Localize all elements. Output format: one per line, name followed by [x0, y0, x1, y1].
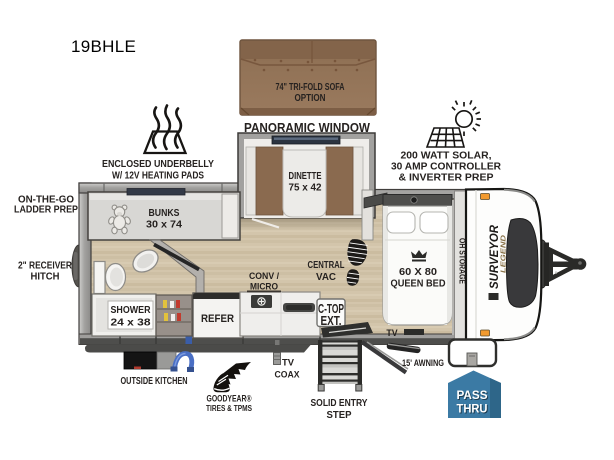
svg-text:BUNKS: BUNKS: [149, 208, 180, 219]
svg-text:OPTION: OPTION: [295, 92, 326, 104]
svg-text:LEGEND: LEGEND: [499, 234, 508, 273]
svg-text:TIRES & TPMS: TIRES & TPMS: [206, 403, 252, 413]
svg-text:SHOWER: SHOWER: [111, 305, 152, 316]
svg-text:QUEEN BED: QUEEN BED: [391, 279, 446, 290]
svg-text:CENTRAL: CENTRAL: [308, 259, 345, 271]
svg-text:2" RECEIVER: 2" RECEIVER: [18, 261, 73, 272]
svg-text:VAC: VAC: [316, 271, 336, 283]
svg-text:LADDER PREP: LADDER PREP: [14, 205, 78, 216]
svg-text:24 x 38: 24 x 38: [111, 318, 152, 329]
svg-text:SOLID ENTRY: SOLID ENTRY: [311, 397, 368, 409]
svg-text:EXT.: EXT.: [321, 314, 342, 328]
svg-text:60 X 80: 60 X 80: [399, 267, 437, 278]
svg-text:STEP: STEP: [327, 409, 352, 421]
svg-text:19BHLE: 19BHLE: [71, 37, 136, 56]
svg-text:TV: TV: [386, 328, 397, 338]
svg-text:OUTSIDE KITCHEN: OUTSIDE KITCHEN: [121, 376, 188, 387]
svg-text:30 x 74: 30 x 74: [146, 220, 183, 231]
svg-text:75 x 42: 75 x 42: [289, 183, 322, 194]
svg-text:HITCH: HITCH: [31, 272, 60, 283]
svg-text:DINETTE: DINETTE: [289, 171, 322, 182]
svg-text:& INVERTER PREP: & INVERTER PREP: [399, 172, 494, 184]
svg-text:THRU: THRU: [457, 404, 488, 416]
svg-text:REFER: REFER: [201, 313, 234, 325]
svg-text:GOODYEAR®: GOODYEAR®: [207, 394, 252, 404]
svg-text:TV: TV: [282, 357, 295, 368]
svg-text:W/ 12V HEATING PADS: W/ 12V HEATING PADS: [112, 170, 204, 182]
svg-text:CONV /: CONV /: [249, 271, 279, 282]
svg-text:15' AWNING: 15' AWNING: [402, 358, 444, 369]
svg-text:PASS: PASS: [457, 390, 488, 402]
svg-text:ENCLOSED UNDERBELLY: ENCLOSED UNDERBELLY: [102, 158, 214, 170]
svg-text:COAX: COAX: [275, 369, 301, 380]
